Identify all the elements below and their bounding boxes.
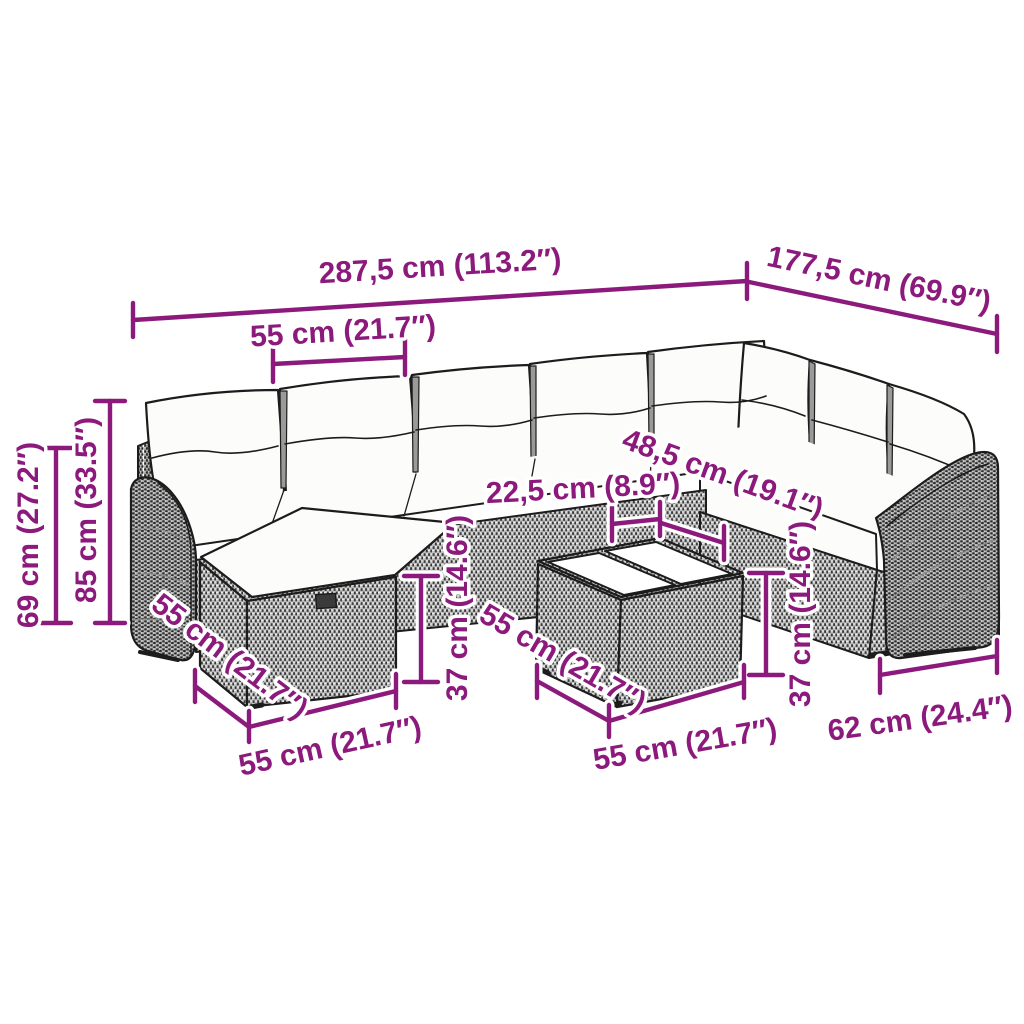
svg-text:37 cm (14.6″): 37 cm (14.6″) [441,515,474,701]
svg-text:69 cm (27.2″): 69 cm (27.2″) [12,442,45,628]
svg-text:85 cm (33.5″): 85 cm (33.5″) [70,417,103,603]
svg-text:37 cm (14.6″): 37 cm (14.6″) [784,521,817,707]
